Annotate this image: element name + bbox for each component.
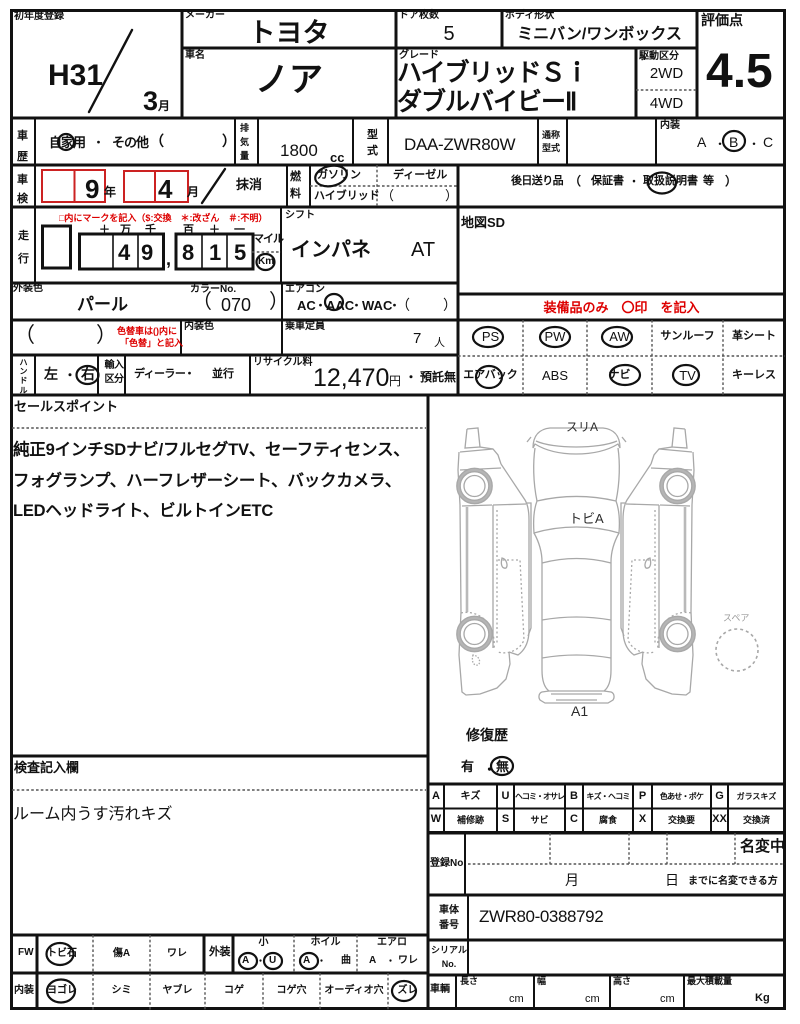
svg-text:トビA: トビA — [569, 511, 604, 526]
svg-text:A1: A1 — [571, 703, 588, 719]
svg-text:スリA: スリA — [566, 420, 598, 434]
svg-text:スペア: スペア — [723, 613, 749, 623]
